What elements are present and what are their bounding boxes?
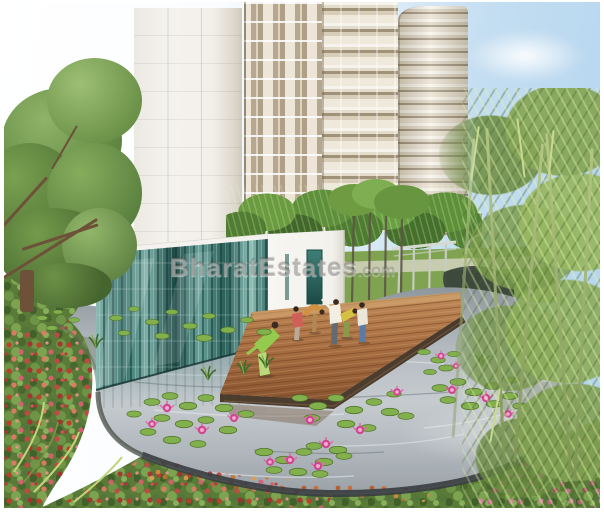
- scene: BharatEstates.com: [4, 2, 600, 508]
- lily-pad: [127, 411, 141, 417]
- lily-pad: [257, 329, 271, 335]
- lily-pad: [296, 449, 312, 456]
- lily-pad: [46, 326, 57, 331]
- watermark-text: BharatEstates: [170, 252, 358, 282]
- watermark-suffix: .com: [358, 263, 395, 280]
- lily-pad: [155, 333, 169, 339]
- lily-pad: [163, 436, 181, 443]
- left-tree: [4, 48, 150, 312]
- watermark: BharatEstates.com: [170, 252, 395, 283]
- lily-pad: [36, 316, 47, 321]
- tree-trunk: [20, 270, 34, 312]
- lily-pad: [110, 315, 123, 320]
- lily-pad: [183, 323, 197, 329]
- lily-pad: [162, 393, 178, 400]
- lily-pad: [366, 399, 382, 406]
- lily-pad: [118, 330, 130, 335]
- lily-pad: [215, 404, 233, 411]
- lily-pad: [175, 420, 193, 427]
- lily-pad: [306, 443, 322, 450]
- tree-canopy: [22, 263, 112, 308]
- tree-canopy: [47, 58, 142, 143]
- lily-pad: [328, 395, 344, 402]
- bamboo-grove: [432, 88, 600, 508]
- lily-pad: [292, 395, 308, 402]
- lily-pad: [198, 417, 214, 424]
- lily-pad: [221, 327, 235, 333]
- lily-pad: [68, 318, 79, 323]
- lily-pad: [381, 408, 399, 415]
- lily-pad: [219, 426, 237, 433]
- lily-pad: [166, 309, 178, 314]
- lily-pad: [345, 406, 363, 413]
- lily-pad: [312, 471, 328, 478]
- lily-pad: [145, 319, 159, 325]
- lily-pad: [336, 453, 352, 460]
- lily-pad: [198, 395, 214, 402]
- lily-pad: [140, 429, 156, 436]
- lily-pad: [309, 402, 327, 409]
- lily-pad: [398, 413, 414, 420]
- lily-pad: [154, 415, 170, 422]
- lily-pad: [203, 313, 216, 318]
- lily-pad: [255, 448, 273, 455]
- lily-pad: [241, 317, 254, 322]
- lily-pad: [266, 467, 282, 474]
- lily-pad: [196, 335, 212, 342]
- lily-pad: [190, 441, 206, 448]
- property-rendering-image: BharatEstates.com: [0, 0, 604, 520]
- lily-pad: [144, 399, 160, 406]
- bamboo-leaf-texture: [462, 88, 600, 508]
- lily-pad: [337, 420, 355, 427]
- lily-pad: [418, 349, 431, 354]
- lily-pad: [179, 402, 197, 409]
- lily-pad: [289, 468, 307, 475]
